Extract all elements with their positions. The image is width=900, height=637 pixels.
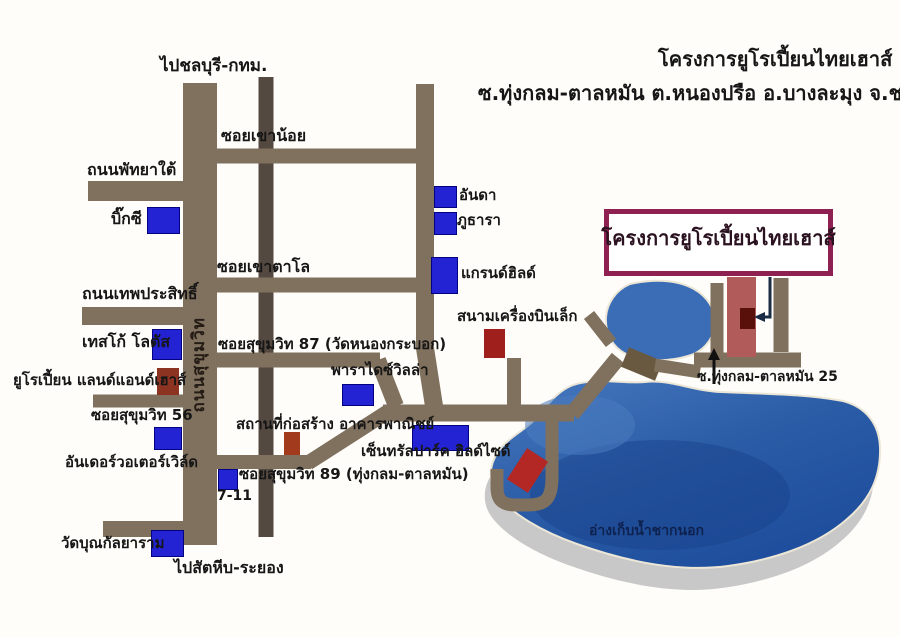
label-wat-bun-kanlayaram: วัดบุณกัลยาราม — [61, 535, 164, 552]
label-european-land-house: ยูโรเปี้ยน แลนด์แอนด์เฮาส์ — [13, 372, 186, 389]
label-soi-sukhumvit-89: ซอยสุขุมวิท 89 (ทุ่งกลม-ตาลหมัน) — [239, 466, 469, 483]
label-soi-thung-klom-25: ซ.ทุ่งกลม-ตาลหมัน 25 — [697, 369, 838, 385]
label-central-park-hillside: เซ็นทรัลปาร์ค ฮิลด์ไซด์ — [361, 443, 511, 460]
label-sukhumvit-road-vertical: ถนนสุขุมวิท — [190, 290, 210, 440]
label-south-pattaya: ถนนพัทยาใต้ — [87, 161, 176, 179]
label-tesco-lotus: เทสโก้ โลตัส — [82, 333, 170, 351]
construction-site-marker — [284, 432, 300, 455]
project-sign-label: โครงการยูโรเปี้ยนไทยเฮาส์ — [601, 222, 835, 254]
label-underwater-world: อันเดอร์วอเตอร์เวิล์ด — [65, 454, 198, 471]
label-anda: อันดา — [459, 187, 496, 204]
paradise-villa-marker — [342, 384, 374, 406]
road-bridge — [625, 357, 659, 371]
map-canvas: โครงการยูโรเปี้ยนไทยเฮาส์ โครงการยูโรเปี… — [0, 0, 900, 637]
label-small-airfield: สนามเครื่องบินเล็ก — [457, 308, 577, 325]
road-third-vertical — [425, 84, 434, 406]
label-phuthara: ภูธารา — [457, 212, 501, 229]
label-seven-eleven: 7-11 — [217, 488, 252, 504]
label-to-sattahip: ไปสัตหีบ-ระยอง — [174, 559, 284, 577]
label-chak-nok-reservoir: อ่างเก็บน้ำชากนอก — [589, 523, 704, 539]
label-soi-khao-noi: ซอยเขาน้อย — [221, 127, 306, 145]
label-grand-hill: แกรนด์ฮิลด์ — [461, 265, 536, 282]
grand-hill-marker — [431, 257, 458, 294]
big-c-marker — [147, 207, 180, 234]
seven-eleven-marker — [218, 469, 238, 490]
label-big-c: บิ๊กซี — [111, 210, 142, 228]
project-sign-box: โครงการยูโรเปี้ยนไทยเฮาส์ — [604, 209, 833, 276]
label-thepprasit: ถนนเทพประสิทธิ์ — [82, 285, 198, 303]
anda-marker — [434, 186, 457, 208]
map-title-line2: ซ.ทุ่งกลม-ตาลหมัน ต.หนองปรือ อ.บางละมุง … — [478, 82, 900, 105]
label-soi-sukhumvit-56: ซอยสุขุมวิท 56 — [91, 407, 193, 424]
label-paradise-villa: พาราไดซ์วิลล่า — [331, 362, 429, 379]
underwater-world-marker — [154, 427, 182, 450]
upper-pond — [606, 281, 715, 361]
label-soi-khao-talo: ซอยเขาตาโล — [217, 258, 310, 276]
label-to-chonburi: ไปชลบุรี-กทม. — [160, 57, 267, 77]
map-title-line1: โครงการยูโรเปี้ยนไทยเฮาส์ — [658, 48, 892, 71]
label-construction-site: สถานที่ก่อสร้าง อาคารพาณิชย์ — [236, 416, 434, 433]
small-airfield-marker — [484, 329, 505, 358]
label-soi-sukhumvit-87: ซอยสุขุมวิท 87 (วัดหนองกระบอก) — [218, 336, 446, 353]
phuthara-marker — [434, 212, 457, 235]
road-bridge-east — [655, 365, 700, 372]
project-unit-marker — [740, 308, 755, 329]
